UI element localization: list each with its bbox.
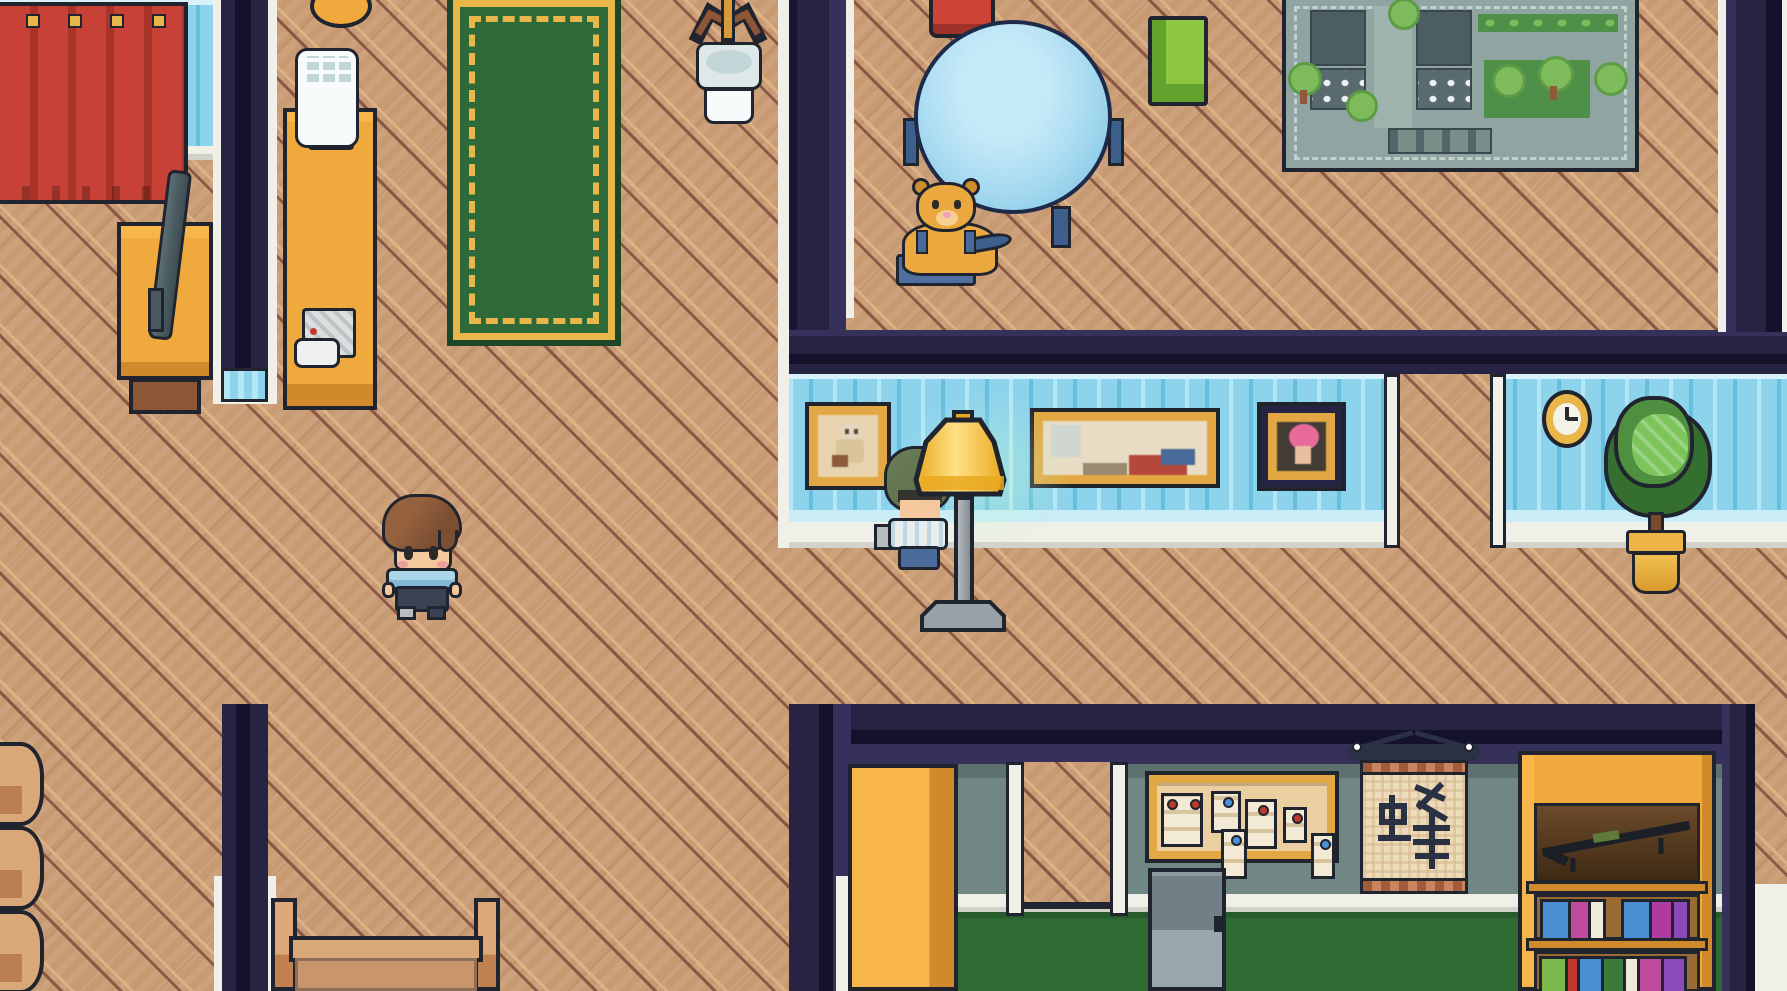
rug-field [469,16,599,324]
player-eye [404,546,413,560]
furniture-knob [0,910,44,991]
shelf-edge [1526,938,1708,951]
potted-tree[interactable] [1604,392,1720,604]
teddy-strap [916,230,928,254]
scroll-rod-cap [1464,742,1474,752]
locker-handle [1214,916,1226,932]
wall-segment [221,0,268,368]
chair-green[interactable] [1148,16,1208,106]
shelf-edge [1526,881,1708,894]
pin-blue [1231,835,1242,846]
table-leg [1051,206,1071,248]
teddy-eye [954,200,961,209]
tv-stand-base [129,378,201,414]
pedestal-sink[interactable] [694,42,770,128]
map-building [1310,10,1366,66]
coat-rack-icon [688,0,768,44]
dining-left-wall [789,0,846,376]
telephone[interactable] [298,308,360,380]
curtain-hook [68,14,82,28]
picture-pink[interactable] [1257,402,1346,491]
book [1671,899,1690,943]
floor-lamp-icon [912,410,1014,632]
dining-left-trim [846,0,854,318]
painting-blue-blob [1161,449,1195,465]
scroll-rod-cap [1352,742,1362,752]
kanji-glyph [1378,778,1450,874]
player-shoe [427,606,446,620]
player-arm [449,582,462,598]
bookshelf-mid-opening [1534,894,1700,940]
map-building [1416,10,1472,66]
scroll-rod [1348,744,1480,761]
player-character[interactable] [382,494,464,626]
game-scene [0,0,1787,991]
floor-lamp[interactable] [912,410,1014,632]
player-arm [382,582,395,598]
study-doorframe [1006,762,1024,916]
doll-eye [845,429,849,434]
dining-right-wall [1726,0,1782,332]
hall-doorway-floor[interactable] [1398,374,1492,548]
side-furniture[interactable] [0,742,56,991]
study-doorway-floor[interactable] [1022,762,1112,908]
city-map-rug[interactable] [1282,0,1639,172]
yellow-cabinet[interactable] [848,764,958,991]
pin-blue [1320,839,1331,850]
bed-headboard[interactable] [271,898,500,991]
curtain[interactable] [0,2,188,204]
pinned-note[interactable] [1211,791,1241,833]
bookshelf-top-opening [1534,803,1700,883]
doll-patch [832,455,848,467]
pin-blue [1223,797,1234,808]
map-building-windows [1416,68,1472,110]
pin-red [1292,813,1303,824]
hall-doorframe [1490,374,1506,548]
tv-mount [148,288,164,332]
plant-pot-rim [1626,530,1686,554]
pinned-note[interactable] [1161,793,1203,847]
dining-bottom-wall [789,330,1787,376]
teddy-nose [943,212,951,218]
map-tree [1492,64,1526,98]
furniture-knob [0,826,44,910]
green-rug[interactable] [447,0,621,346]
wall-segment [222,704,268,991]
plant-pot [1632,552,1680,594]
curtain-hook [26,14,40,28]
wall-end-cap [221,368,268,402]
map-hedge-row [1478,14,1618,32]
pin-red [1258,805,1269,816]
picture-pink-photo [1277,422,1326,471]
phone-receiver [294,338,340,368]
shelf-weapon-icon[interactable] [1537,806,1697,880]
furniture-patch [0,870,22,898]
sink-foot [704,88,754,124]
bookshelf-bottom-opening [1534,951,1700,989]
pin-red [1167,799,1178,810]
pinned-note[interactable] [1245,799,1277,849]
book [1588,899,1606,943]
study-doorframe [1110,762,1128,916]
teddy-strap [964,230,976,254]
map-trunk [1550,86,1557,100]
curtain-hook [110,14,124,28]
sink-basin [706,50,752,74]
study-right-wall [1722,704,1755,991]
furniture-patch [0,786,22,814]
bed-panel [295,958,477,991]
study-right-outer-trim [1755,884,1787,991]
screen-right-trim [1782,0,1787,332]
teddy-bear[interactable] [894,180,1016,292]
player-hair-lock [438,530,458,552]
hall-doorframe [1384,374,1400,548]
white-appliance[interactable] [295,48,361,152]
pinned-note[interactable] [1311,833,1335,879]
kanji-scroll[interactable] [1348,726,1484,908]
curtain-hem [0,186,184,200]
map-stairs [1388,128,1492,154]
clock-hour-hand [1567,417,1578,421]
doll-eye [854,429,858,434]
scroll-trim-top [1360,760,1468,775]
scroll-trim-bottom [1360,878,1468,894]
coat-rack[interactable] [688,0,768,44]
picture-doll-canvas [818,415,878,477]
dining-right-trim [1718,0,1726,332]
appliance-grid [303,56,351,86]
pink-face [1295,446,1311,464]
tree-canopy-light [1632,414,1688,476]
metal-locker[interactable] [1148,868,1226,991]
book [1661,956,1687,991]
player-blush [437,561,448,568]
teddy-eye [932,200,939,209]
wall-clock[interactable] [1542,390,1592,448]
map-tree [1594,62,1628,96]
furniture-patch [0,954,22,982]
study-threshold [1022,902,1112,909]
player-eye [429,546,438,560]
curtain-hook [152,14,166,28]
pinned-note[interactable] [1283,807,1307,843]
pin-red [1190,799,1201,810]
player-shoe [397,606,416,620]
phone-light [310,328,317,335]
map-tree [1346,90,1378,122]
player-blush [397,561,408,568]
map-trunk [1300,90,1307,104]
bookshelf[interactable] [1518,751,1718,991]
furniture-knob [0,742,44,826]
